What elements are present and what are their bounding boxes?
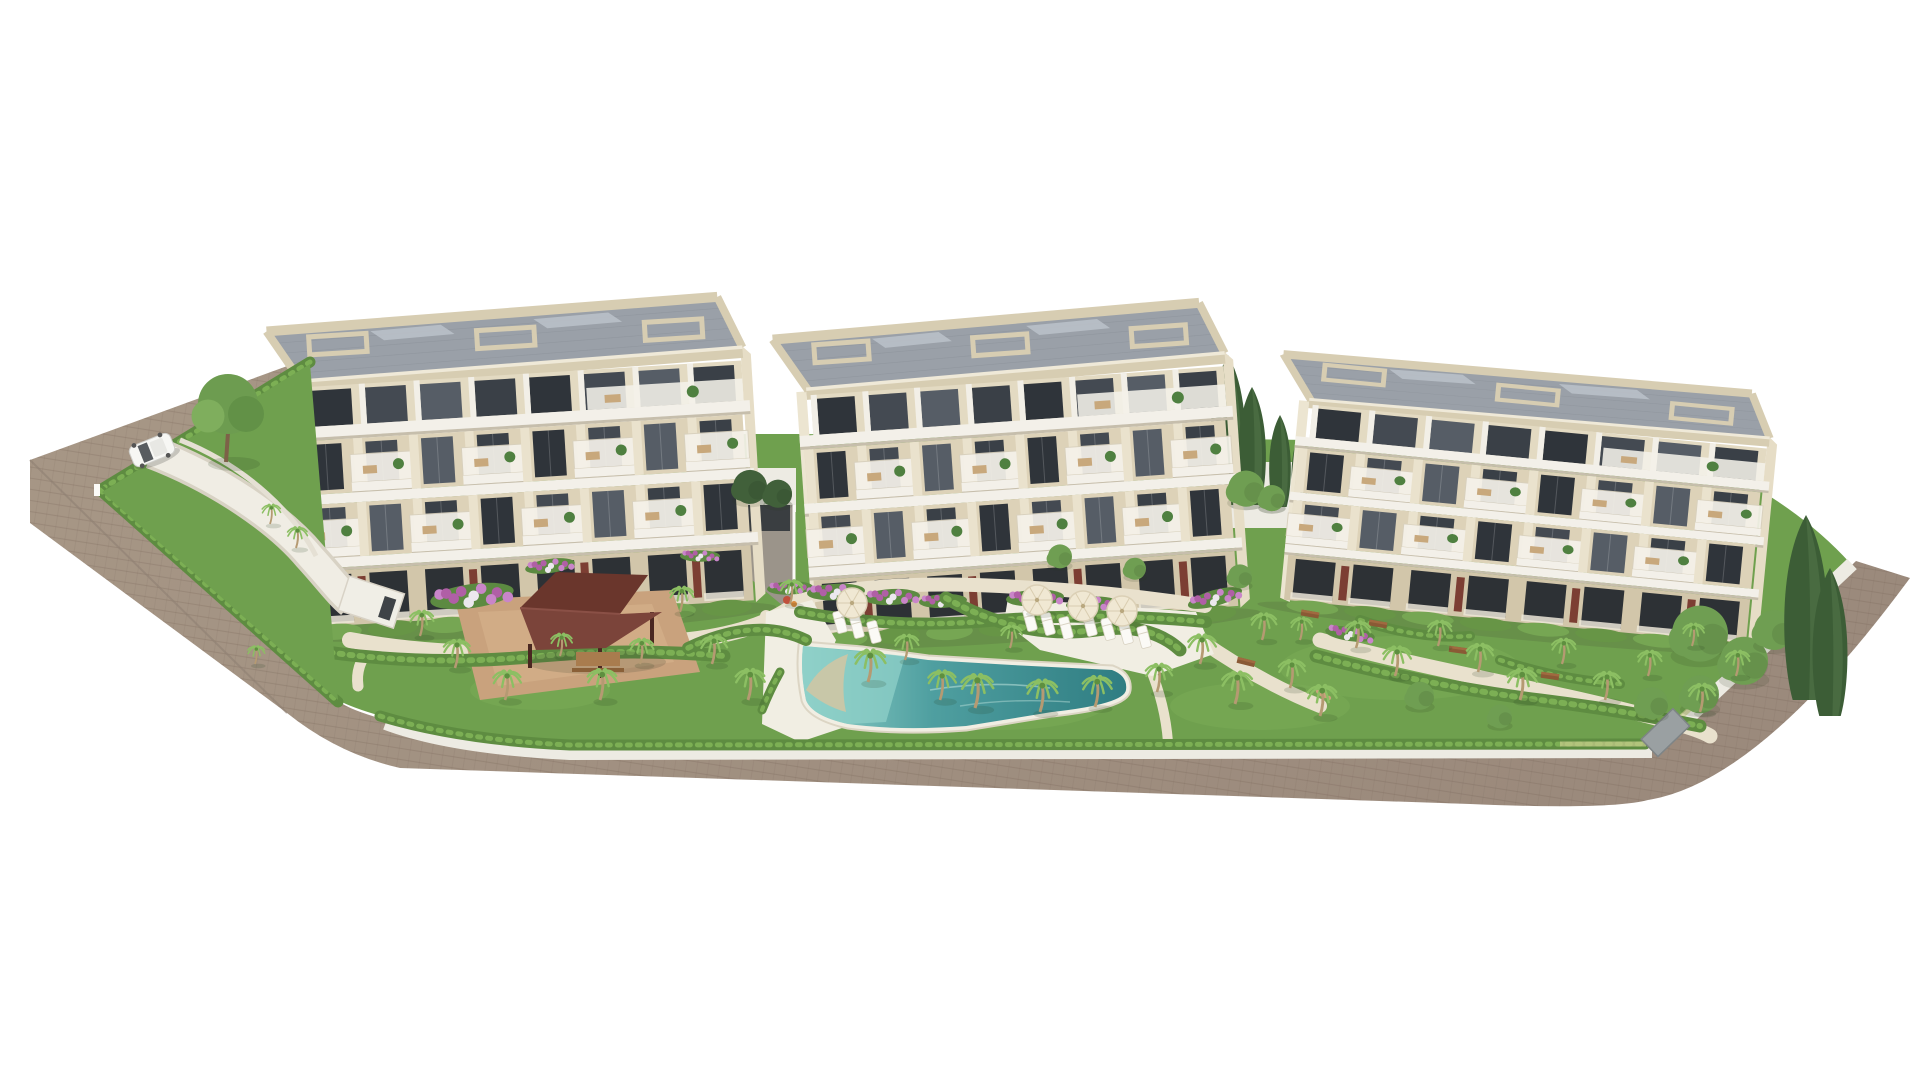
- balcony: [960, 451, 1023, 495]
- balcony: [1170, 436, 1233, 480]
- penthouse-window: [869, 392, 909, 431]
- balcony: [521, 504, 587, 548]
- balcony: [684, 430, 750, 474]
- penthouse-window: [1486, 425, 1532, 459]
- penthouse-window: [420, 382, 463, 420]
- penthouse-window: [972, 385, 1012, 424]
- balcony: [1122, 503, 1185, 547]
- balcony: [461, 444, 527, 488]
- penthouse-window: [1372, 414, 1418, 448]
- balcony: [350, 451, 416, 495]
- balcony: [573, 437, 639, 481]
- penthouse-window: [1429, 420, 1475, 454]
- terrace-furniture: [604, 394, 620, 403]
- penthouse-window: [1024, 382, 1064, 421]
- render-canvas: [0, 0, 1920, 1080]
- penthouse-window: [920, 389, 960, 428]
- balcony: [632, 498, 698, 542]
- balcony: [410, 511, 476, 555]
- balcony: [854, 458, 917, 502]
- penthouse-window: [529, 375, 572, 413]
- penthouse-window: [817, 396, 857, 435]
- wall-pillar: [94, 484, 100, 496]
- balcony: [806, 526, 869, 570]
- balcony: [1065, 443, 1128, 487]
- flower-bed: [680, 550, 720, 561]
- architectural-rendering: [0, 0, 1920, 1080]
- balcony: [911, 518, 974, 562]
- balcony: [1017, 511, 1080, 555]
- penthouse-window: [310, 388, 353, 426]
- penthouse-window: [365, 385, 408, 423]
- terrace-furniture: [1094, 400, 1111, 409]
- penthouse-window: [1316, 409, 1362, 443]
- penthouse-window: [474, 378, 517, 416]
- picnic-table: [576, 652, 620, 666]
- penthouse-window: [1543, 431, 1589, 465]
